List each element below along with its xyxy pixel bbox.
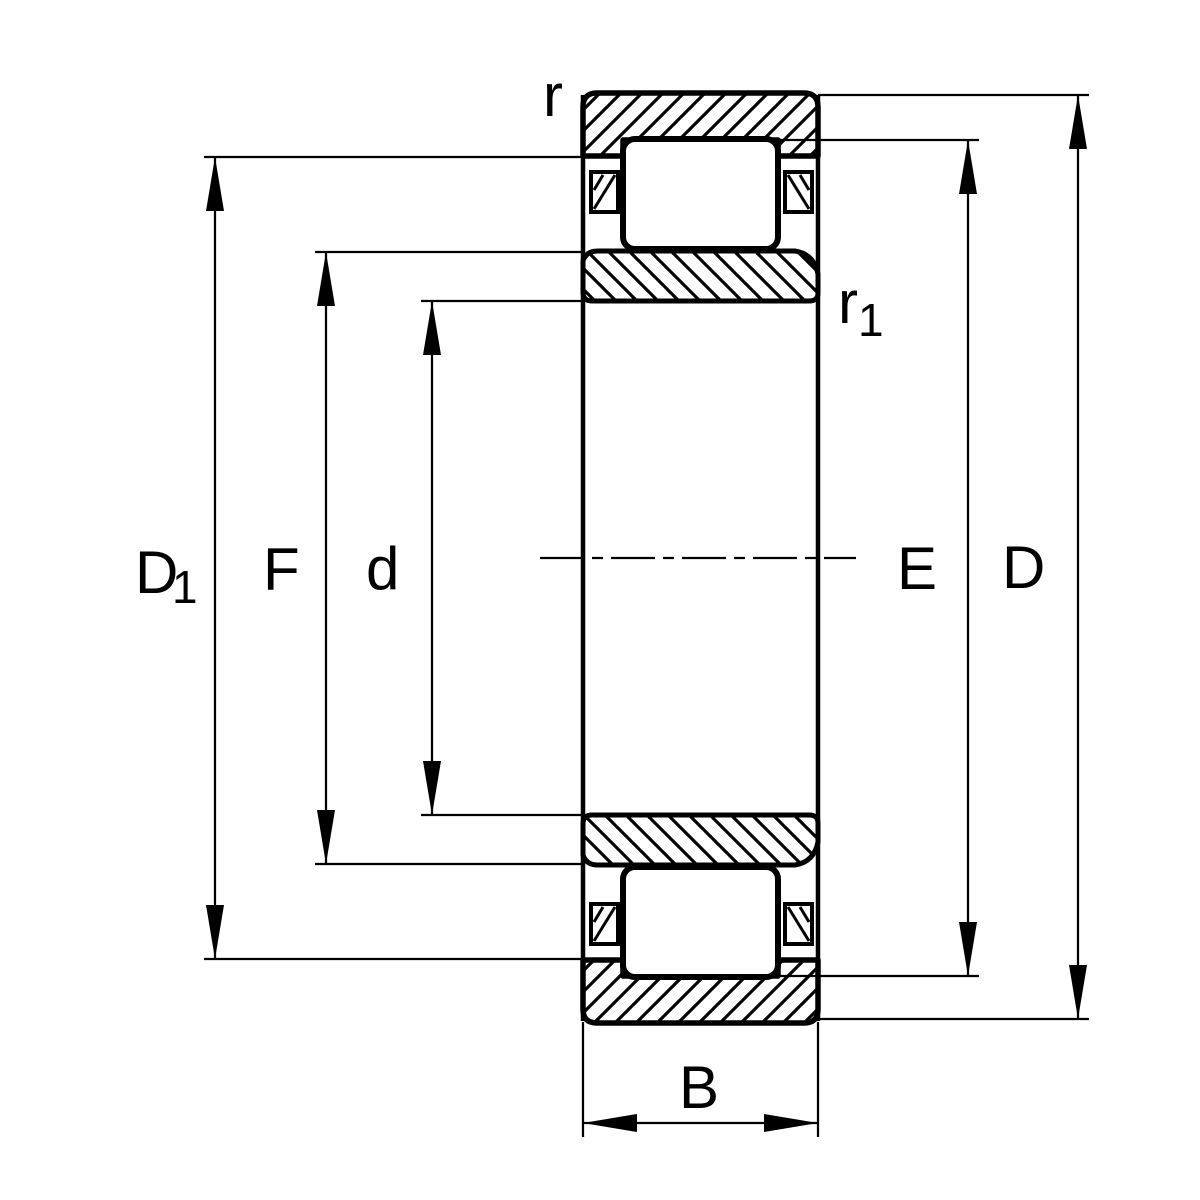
- roller-top: [623, 139, 778, 249]
- arrowhead-down-icon: [423, 761, 441, 815]
- cage-block-bottom-left: [591, 904, 618, 944]
- arrowhead-up-icon: [959, 140, 977, 194]
- arrowhead-up-icon: [423, 301, 441, 355]
- arrowhead-up-icon: [317, 252, 335, 306]
- label-F: F: [263, 536, 300, 603]
- dimension-D: [818, 95, 1089, 1019]
- inner-ring-top-section: [583, 251, 818, 301]
- label-r1: r: [838, 269, 858, 336]
- arrowhead-down-icon: [1069, 965, 1087, 1019]
- label-D1-subscript: 1: [172, 561, 198, 613]
- label-D: D: [1002, 534, 1045, 601]
- arrowhead-left-icon: [583, 1114, 637, 1132]
- label-B: B: [679, 1054, 719, 1121]
- cage-block-bottom-right: [785, 904, 812, 944]
- arrowhead-up-icon: [1069, 95, 1087, 149]
- arrowhead-down-icon: [959, 922, 977, 976]
- inner-ring-bottom-section: [583, 815, 818, 865]
- label-r1-subscript: 1: [858, 294, 884, 346]
- roller-bottom: [623, 867, 778, 977]
- cage-block-top-left: [591, 172, 618, 212]
- arrowhead-right-icon: [764, 1114, 818, 1132]
- arrowhead-up-icon: [206, 157, 224, 211]
- cage-block-top-right: [785, 172, 812, 212]
- bearing-cross-section-drawing: D 1 F d E D r r 1 B: [0, 0, 1200, 1200]
- label-r: r: [543, 62, 563, 129]
- arrowhead-down-icon: [206, 905, 224, 959]
- label-d: d: [366, 535, 399, 602]
- label-E: E: [897, 535, 937, 602]
- arrowhead-down-icon: [317, 810, 335, 864]
- drawing-svg: D 1 F d E D r r 1 B: [0, 0, 1200, 1200]
